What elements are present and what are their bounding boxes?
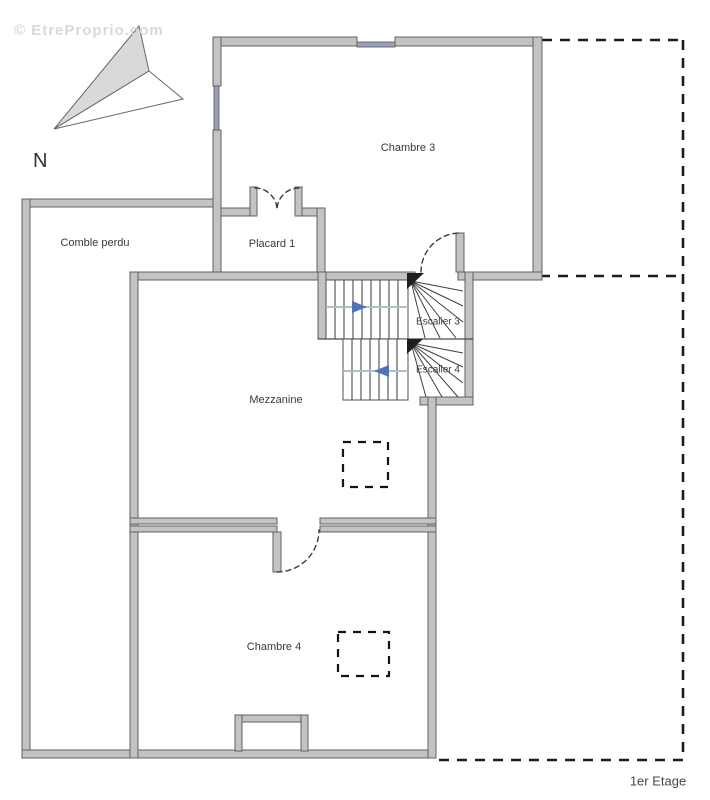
stair-flight: [326, 280, 408, 339]
floor-plan: © EtreProprio.com N Chambre 3 Placard 1 …: [0, 0, 710, 800]
alcove-wall: [235, 715, 308, 722]
wall-segment: [130, 526, 277, 532]
dashed-square: [338, 632, 389, 676]
winder-fan: [411, 281, 463, 338]
north-arrow-icon: [54, 26, 183, 129]
room-label-chambre-3: Chambre 3: [381, 142, 435, 154]
wall-segment: [130, 272, 138, 758]
wall-segment: [318, 272, 326, 339]
alcove-wall: [301, 715, 308, 751]
wall-segment: [395, 37, 542, 46]
wall-segment: [320, 518, 436, 524]
stair-flight: [343, 339, 408, 400]
alcove-wall: [235, 715, 242, 751]
room-label-escalier-4: Escalier 4: [416, 365, 460, 376]
wall-segment: [320, 526, 436, 532]
room-label-escalier-3: Escalier 3: [416, 317, 460, 328]
stairs-escalier-3: [326, 273, 463, 339]
watermark: © EtreProprio.com: [14, 22, 164, 39]
door-swing-arc: [277, 530, 319, 572]
floor-label: 1er Etage: [630, 774, 686, 789]
wall-segment: [130, 518, 277, 524]
duct-squares: [338, 442, 389, 676]
door-jamb: [250, 187, 257, 216]
door-swing-arc: [255, 188, 277, 210]
door-jamb: [295, 187, 302, 216]
wall-segment: [22, 750, 436, 758]
wall-segment: [213, 37, 357, 46]
wall-segment: [221, 208, 250, 216]
door-leaf: [273, 532, 281, 572]
door-swing-arc: [421, 233, 460, 272]
window-icon: [214, 86, 219, 130]
floor-plan-drawing: [0, 0, 710, 800]
wall-segment: [130, 272, 415, 280]
room-label-placard-1: Placard 1: [249, 238, 295, 250]
room-label-chambre-4: Chambre 4: [247, 641, 301, 653]
north-label: N: [33, 150, 47, 173]
room-label-mezzanine: Mezzanine: [249, 394, 302, 406]
wall-segment: [213, 130, 221, 280]
wall-segment: [213, 37, 221, 86]
wall-segment: [22, 199, 30, 758]
window-icon: [357, 42, 395, 47]
door-leaf: [456, 233, 464, 272]
wall-segment: [428, 397, 436, 758]
windows: [214, 42, 395, 130]
stair-origin-wedge: [407, 339, 423, 354]
wall-segment: [533, 37, 542, 280]
dashed-square: [343, 442, 388, 487]
wall-segment: [22, 199, 213, 207]
room-label-comble-perdu: Comble perdu: [60, 237, 129, 249]
wall-segment: [317, 208, 325, 280]
